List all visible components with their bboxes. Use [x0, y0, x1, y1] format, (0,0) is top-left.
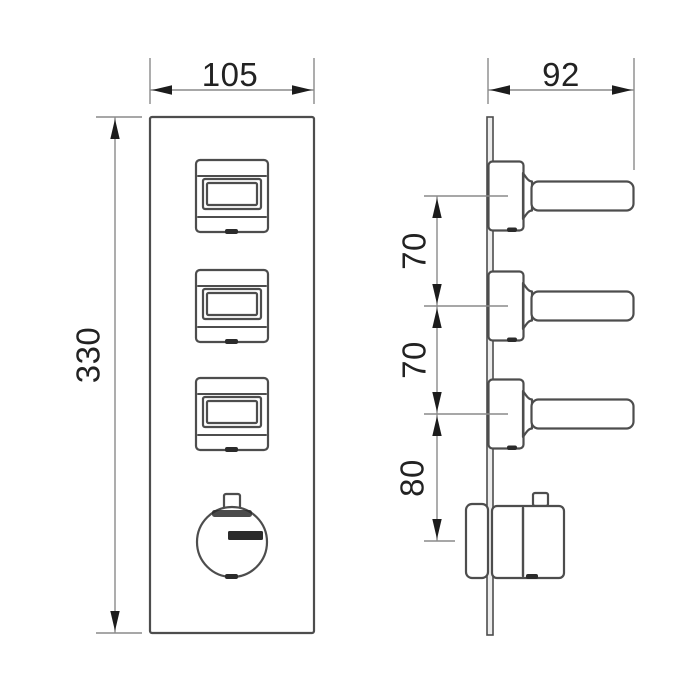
- arrowhead-up: [432, 308, 441, 328]
- arrowhead-up: [432, 416, 441, 436]
- arrowhead-right: [292, 85, 312, 95]
- front-view: [150, 117, 314, 633]
- side-view: [466, 117, 634, 635]
- front-handle-2: [196, 270, 268, 344]
- front-handle-3: [196, 378, 268, 452]
- arrowhead-up: [110, 119, 119, 139]
- dim-label-front-height: 330: [70, 327, 107, 384]
- dim-label-knob-gap: 80: [394, 459, 431, 497]
- dimension-front-height: 330: [70, 117, 143, 633]
- dim-label-lever-gap-1: 70: [396, 232, 433, 270]
- arrowhead-right: [612, 85, 632, 95]
- arrowhead-up: [432, 198, 441, 218]
- side-lever-2: [489, 272, 634, 343]
- knob-rear-cap: [466, 504, 488, 578]
- dim-label-front-width: 105: [202, 56, 259, 93]
- arrowhead-left: [152, 85, 172, 95]
- arrowhead-down: [432, 392, 441, 412]
- dimension-side-depth: 92: [488, 56, 634, 170]
- knob-dial: [197, 507, 267, 577]
- temperature-scale-mark: [212, 510, 252, 517]
- technical-drawing-canvas: 105 330 92 70 70 80: [0, 0, 700, 700]
- side-lever-3: [489, 380, 634, 451]
- knob-side-tab: [533, 493, 548, 506]
- knob-side-body: [492, 506, 564, 578]
- arrowhead-down: [110, 611, 119, 631]
- side-thermostat-knob: [466, 493, 564, 579]
- knob-index-notch: [225, 574, 238, 579]
- knob-side-notch: [526, 574, 538, 579]
- drawing-svg: 105 330 92 70 70 80: [0, 0, 700, 700]
- arrowhead-down: [432, 284, 441, 304]
- arrowhead-down: [432, 519, 441, 539]
- dim-label-lever-gap-2: 70: [396, 341, 433, 379]
- arrowhead-left: [490, 85, 510, 95]
- side-lever-1: [489, 162, 634, 233]
- brand-label-bar: [228, 531, 263, 540]
- dimension-front-width: 105: [150, 56, 314, 104]
- front-handle-1: [196, 160, 268, 234]
- dim-label-side-depth: 92: [542, 56, 580, 93]
